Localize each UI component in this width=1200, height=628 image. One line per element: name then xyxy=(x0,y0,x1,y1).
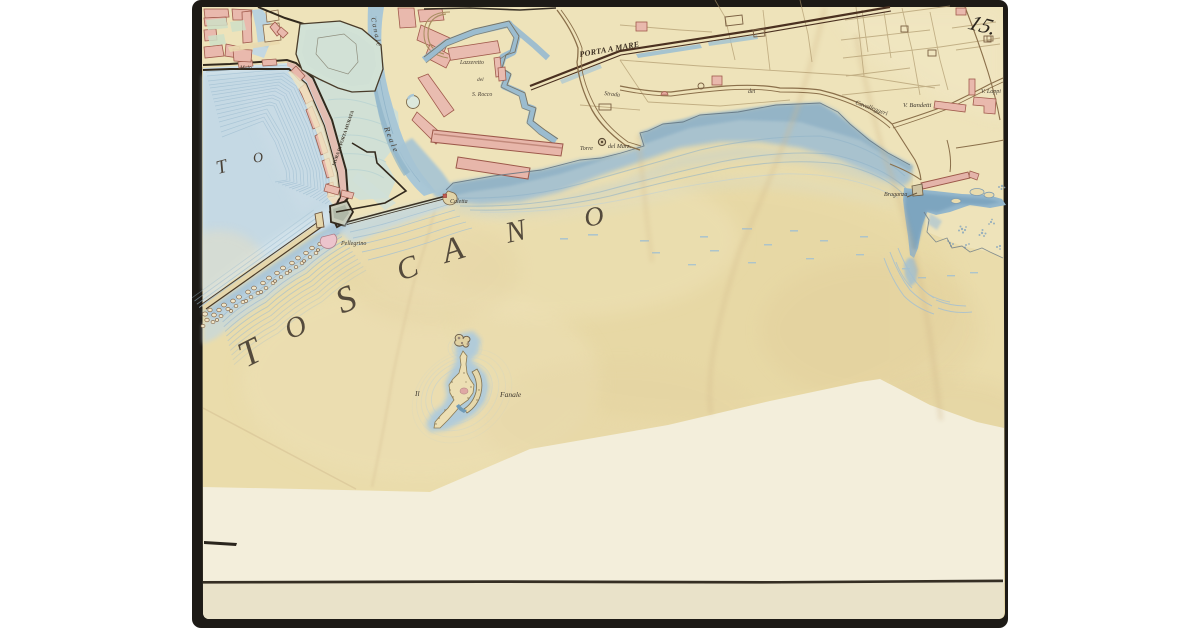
svg-text:Fanale: Fanale xyxy=(499,390,522,399)
svg-text:Lazzeretto: Lazzeretto xyxy=(459,60,484,66)
svg-text:V. Bandetti: V. Bandetti xyxy=(903,102,932,109)
svg-text:S. Rocco: S. Rocco xyxy=(472,92,492,98)
svg-text:dei: dei xyxy=(748,89,756,95)
svg-text:V. Lappi: V. Lappi xyxy=(981,89,1001,95)
svg-text:Il: Il xyxy=(414,389,420,398)
svg-text:Molo: Molo xyxy=(239,65,252,71)
svg-text:Caletta: Caletta xyxy=(450,199,468,205)
svg-text:Pellegrino: Pellegrino xyxy=(340,241,366,247)
svg-text:del: del xyxy=(477,77,484,83)
svg-text:Torre: Torre xyxy=(580,146,593,152)
svg-text:del Marz.: del Marz. xyxy=(608,144,631,150)
svg-text:Braganza: Braganza xyxy=(884,192,907,198)
